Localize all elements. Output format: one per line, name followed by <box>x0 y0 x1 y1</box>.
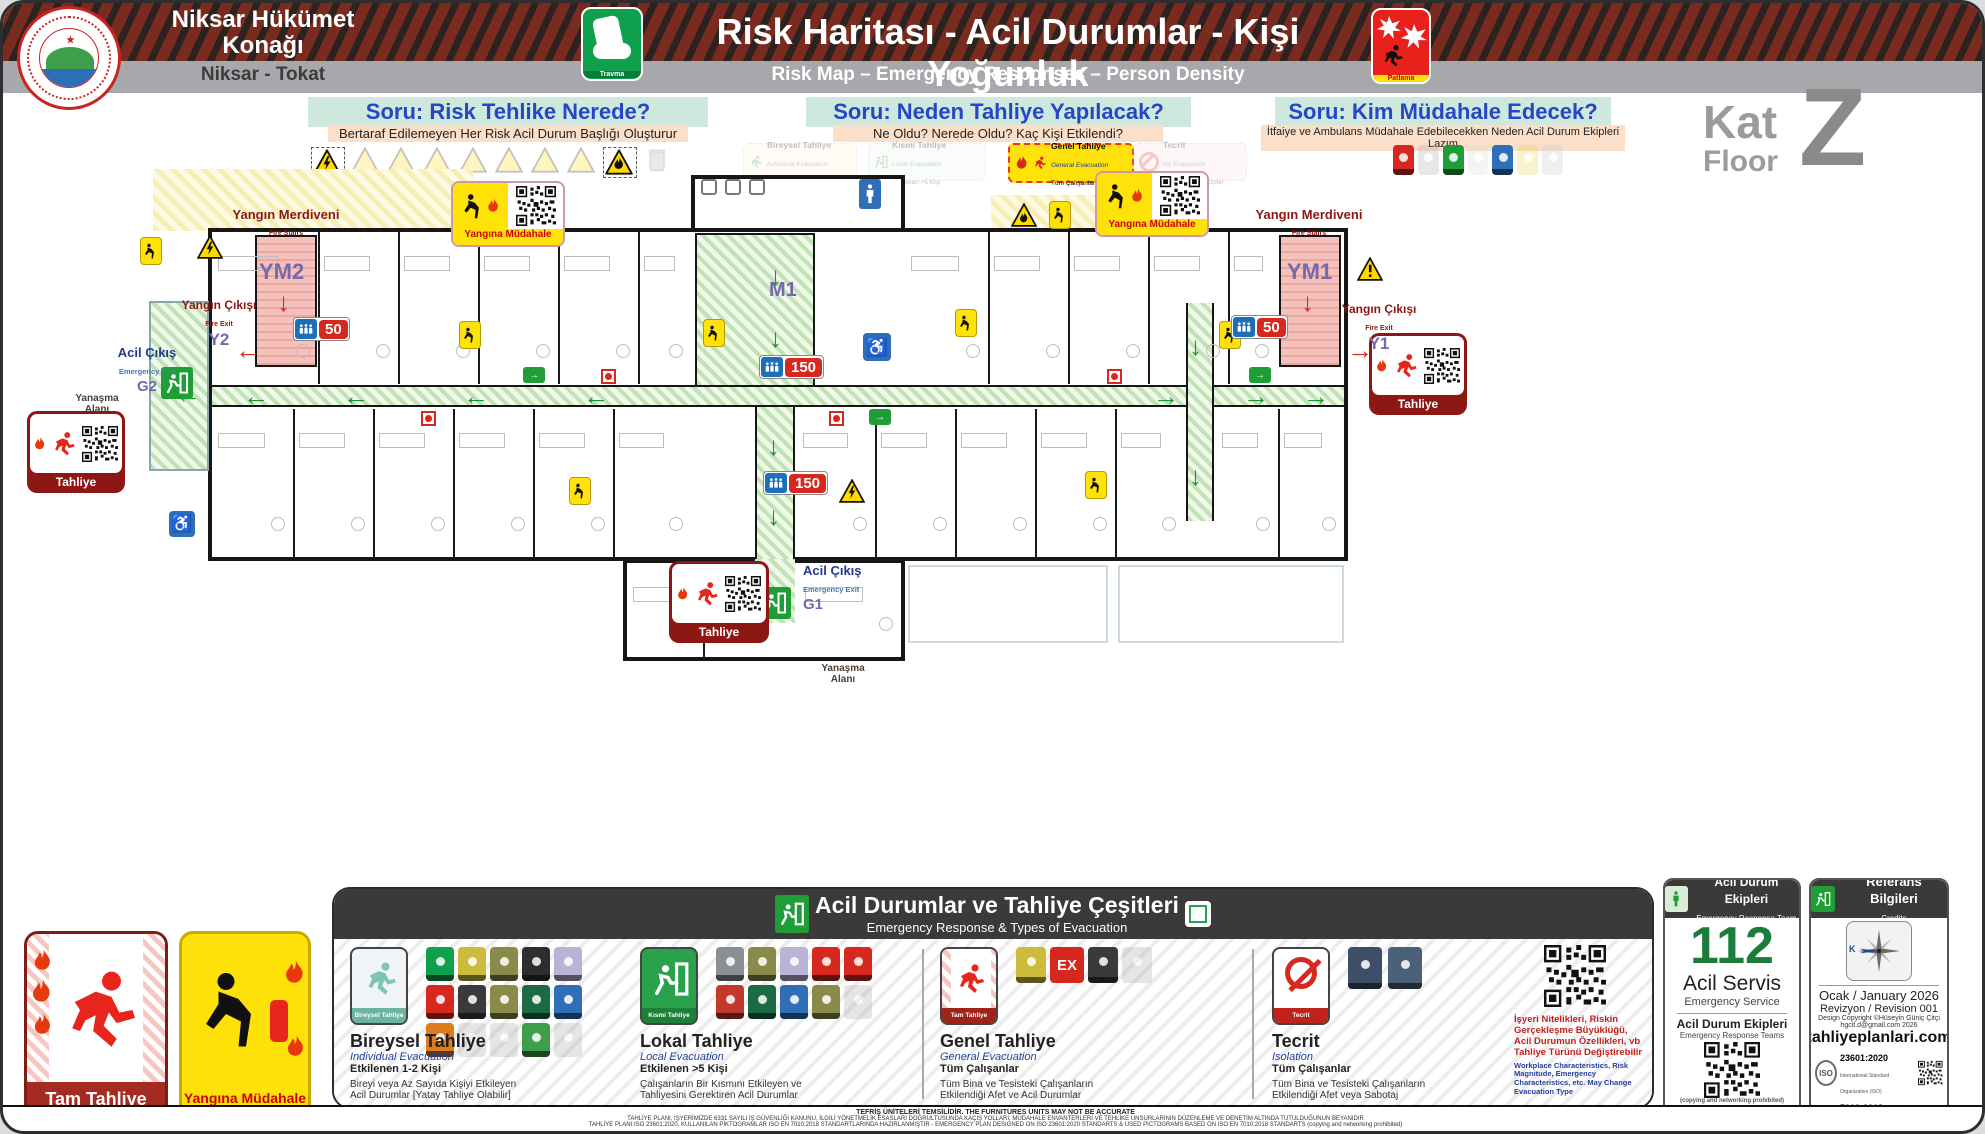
stair-code-ym1: YM1 <box>1287 259 1332 285</box>
legend-title: Acil Durumlar ve Tahliye Çeşitleri <box>815 892 1179 918</box>
elevator-icon <box>749 179 765 195</box>
extinguisher-icon <box>1049 201 1071 229</box>
extinguisher-icon <box>1085 471 1107 499</box>
evacuation-arrow-down: ↓ <box>1189 333 1202 359</box>
emergency-exit-label-g1: Acil Çıkış Emergency Exit G1 <box>803 563 913 613</box>
room <box>293 409 375 557</box>
extinguisher-icon <box>140 237 162 265</box>
legend-panel: Acil Durumlar ve Tahliye Çeşitleri Emerg… <box>332 887 1654 1109</box>
legend-body: Bireysel Tahliye Bireysel Tah <box>334 939 1652 1109</box>
extinguisher-icon <box>703 319 725 347</box>
evacuation-arrow-down: ↓ <box>767 503 780 529</box>
evacuation-arrow-right: → <box>1243 383 1269 409</box>
room <box>1278 409 1344 557</box>
government-seal-logo <box>17 6 121 110</box>
room <box>988 232 1070 384</box>
exit-sign-icon: → <box>869 409 891 425</box>
evacuation-qr-badge: Tahliye <box>669 561 769 643</box>
emergency-team-panel: Acil Durum Ekipleri Emergency Response T… <box>1663 878 1801 1120</box>
room <box>1228 232 1277 384</box>
fire-route-arrow-down: ↓ <box>277 289 290 315</box>
room <box>1068 232 1150 384</box>
fire-response-qr-badge: Yangına Müdahale <box>451 181 565 247</box>
room <box>318 232 400 384</box>
core-code-m1: M1 <box>769 279 797 302</box>
legend-note-column: İşyeri Nitelikleri, Riskin Gerçekleşme B… <box>1514 945 1644 1096</box>
response-team-icon <box>1665 886 1688 912</box>
person-count-badge: 50 <box>293 317 350 341</box>
crowd-icon <box>1233 317 1255 337</box>
fire-exit-label-y2: Yangın Çıkışı Fire Exit Y2 <box>169 297 269 349</box>
person-count-badge: 50 <box>1231 315 1288 339</box>
evacuation-arrow-right: → <box>1303 383 1329 409</box>
genel-pictogram-grid: EX <box>1016 947 1156 983</box>
floor-label-floor: Floor <box>1703 145 1778 179</box>
room <box>558 232 640 384</box>
waste-bin-icon <box>643 147 673 174</box>
responder-icon-row <box>1393 145 1563 179</box>
crowd-icon <box>761 357 783 377</box>
exit-sign-icon: → <box>523 367 545 383</box>
exit-sign-icon: → <box>1249 367 1271 383</box>
room <box>453 409 535 557</box>
emergency-exit-label-g2: Acil Çıkış Emergency Exit G2 <box>99 345 195 395</box>
ex-assembly-icon: EX <box>1050 947 1084 983</box>
elevator-icon <box>725 179 741 195</box>
question-1-title: Soru: Risk Tehlike Nerede? <box>308 97 708 127</box>
question-1-subtitle: Bertaraf Edilemeyen Her Risk Acil Durum … <box>328 125 688 142</box>
compass-rose: K <box>1846 921 1912 981</box>
travma-icon: Travma <box>581 7 643 81</box>
room <box>478 232 560 384</box>
person-count-badge: 150 <box>763 471 828 495</box>
tecrit-badge: Tecrit <box>1272 947 1330 1025</box>
floor-letter: Z <box>1799 73 1866 183</box>
canopy-outline <box>1118 565 1344 643</box>
room <box>955 409 1037 557</box>
fire-exit-label-y1: Yangın Çıkışı Fire Exit Y1 <box>1329 301 1429 353</box>
page-subtitle: Risk Map – Emergency Responses – Person … <box>653 64 1363 86</box>
building-name: Niksar Hükümet Konağı <box>133 7 393 60</box>
legend-subtitle: Emergency Response & Types of Evacuation <box>867 920 1128 935</box>
lokal-pictogram-grid <box>716 947 892 1019</box>
electric-hazard-icon <box>839 479 865 508</box>
tecrit-text: Tecrit Isolation Tüm Çalışanlar Tüm Bina… <box>1272 1031 1502 1101</box>
legend-qr-code <box>1544 945 1606 1007</box>
accessibility-icon: ♿ <box>863 333 891 361</box>
fire-hose-icon <box>601 369 616 384</box>
extinguisher-man-icon <box>196 954 276 1064</box>
room <box>398 232 480 384</box>
room <box>1216 409 1280 557</box>
electric-hazard-icon <box>197 235 223 264</box>
accessibility-icon: ♿ <box>169 511 195 537</box>
bireysel-text: Bireysel Tahliye Individual Evacuation E… <box>350 1031 600 1101</box>
fire-alarm-icon <box>1393 145 1414 175</box>
question-3-title: Soru: Kim Müdahale Edecek? <box>1275 97 1611 127</box>
evacuation-arrow-down: ↓ <box>769 325 782 351</box>
mini-map-icon <box>1185 901 1211 927</box>
emergency-qr-code <box>1704 1042 1760 1098</box>
running-man-icon <box>59 958 143 1062</box>
fire-stairs-label-east: Yangın Merdiveni Fire Stairs <box>1236 207 1382 239</box>
emergency-number: 112 <box>1690 920 1774 972</box>
question-2-title: Soru: Neden Tahliye Yapılacak? <box>806 97 1191 127</box>
evacuation-plan-page: Niksar Hükümet Konağı Niksar - Tokat Tra… <box>0 0 1985 1134</box>
question-2-subtitle: Ne Oldu? Nerede Oldu? Kaç Kişi Etkilendi… <box>833 125 1163 142</box>
stair-code-ym2: YM2 <box>259 259 304 285</box>
legend-divider <box>922 949 924 1099</box>
evacuation-qr-badge: Tahliye <box>27 411 125 493</box>
bireysel-tahliye-badge: Bireysel Tahliye <box>350 947 408 1025</box>
canopy-outline <box>908 565 1108 643</box>
responder-icon <box>1468 145 1489 175</box>
hazard-icon <box>495 147 525 174</box>
evacuation-arrow-down: ↓ <box>767 433 780 459</box>
tecrit-pictogram-grid <box>1348 947 1458 989</box>
fire-hose-icon <box>829 411 844 426</box>
legend-header: Acil Durumlar ve Tahliye Çeşitleri Emerg… <box>334 889 1652 939</box>
elevator-icon <box>701 179 717 195</box>
responder-icon <box>1542 145 1563 175</box>
website-link[interactable]: tahliyeplanlari.com <box>1809 1029 1949 1047</box>
crowd-icon <box>295 319 317 339</box>
fire-hazard-icon <box>1011 203 1037 232</box>
kismi-tahliye-badge: Kısmi Tahliye <box>640 947 698 1025</box>
tam-tahliye-badge: Tam Tahliye <box>940 947 998 1025</box>
emergency-team-header: Acil Durum Ekipleri Emergency Response T… <box>1665 880 1799 918</box>
evacuation-arrow-down: ↓ <box>1189 463 1202 489</box>
evacuation-arrow-right: → <box>1153 383 1179 409</box>
wc-men-icon <box>859 179 881 209</box>
evacuation-arrow-left: ← <box>243 383 269 409</box>
room <box>1148 232 1230 384</box>
rescue-team-icon <box>1443 145 1464 175</box>
fire-hose-icon <box>421 411 436 426</box>
iso-qr-code <box>1918 1058 1943 1088</box>
evacuation-team-icon <box>1492 145 1513 175</box>
fire-stairs-label-west: Yangın Merdiveni Fire Stairs <box>213 207 359 239</box>
full-evacuation-badge: Tam Tahliye <box>24 931 168 1119</box>
evacuation-arrow-left: ← <box>583 383 609 409</box>
crowd-icon <box>765 473 787 493</box>
approach-area-label: YanaşmaAlanı <box>59 393 135 415</box>
extinguisher-icon <box>955 309 977 337</box>
approach-area-label: YanaşmaAlanı <box>803 663 883 685</box>
credits-header: Referans Bilgileri Credits <box>1811 880 1947 918</box>
exit-man-icon <box>775 895 809 933</box>
room <box>212 409 295 557</box>
room <box>905 232 990 384</box>
fire-route-arrow-down: ↓ <box>1301 289 1314 315</box>
fire-hazard-icon <box>603 147 637 178</box>
hazard-icon <box>567 147 597 174</box>
fire-hose-icon <box>1107 369 1122 384</box>
credits-icon <box>1811 886 1835 912</box>
room <box>373 409 455 557</box>
person-count-badge: 150 <box>759 355 824 379</box>
extinguisher-icon <box>569 477 591 505</box>
floor-label-kat: Kat <box>1703 101 1777 145</box>
room <box>875 409 957 557</box>
extinguisher-icon <box>459 321 481 349</box>
iso-row-1: ISO 23601:2020International Standard Org… <box>1815 1049 1943 1097</box>
fire-response-big-badge: Yangına Müdahale <box>179 931 311 1119</box>
evacuation-arrow-left: ← <box>463 383 489 409</box>
footer-disclaimer: TEFRİŞ ÜNİTELERİ TEMSİLİDİR. THE FURNITU… <box>3 1105 1985 1131</box>
building-location: Niksar - Tokat <box>133 64 393 86</box>
responder-icon <box>1418 145 1439 175</box>
hazard-icon <box>531 147 561 174</box>
room <box>1115 409 1184 557</box>
room <box>638 232 691 384</box>
responder-icon <box>1517 145 1538 175</box>
fire-response-qr-badge: Yangına Müdahale <box>1095 171 1209 237</box>
evacuation-arrow-left: ← <box>343 383 369 409</box>
genel-text: Genel Tahliye General Evacuation Tüm Çal… <box>940 1031 1200 1101</box>
legend-divider <box>1252 949 1254 1099</box>
room <box>613 409 691 557</box>
lokal-text: Lokal Tahliye Local Evacuation Etkilenen… <box>640 1031 890 1101</box>
patlama-icon: Patlama <box>1371 8 1431 84</box>
hazard-icon <box>1357 257 1383 286</box>
credits-panel: Referans Bilgileri Credits K Ocak / Janu… <box>1809 878 1949 1120</box>
